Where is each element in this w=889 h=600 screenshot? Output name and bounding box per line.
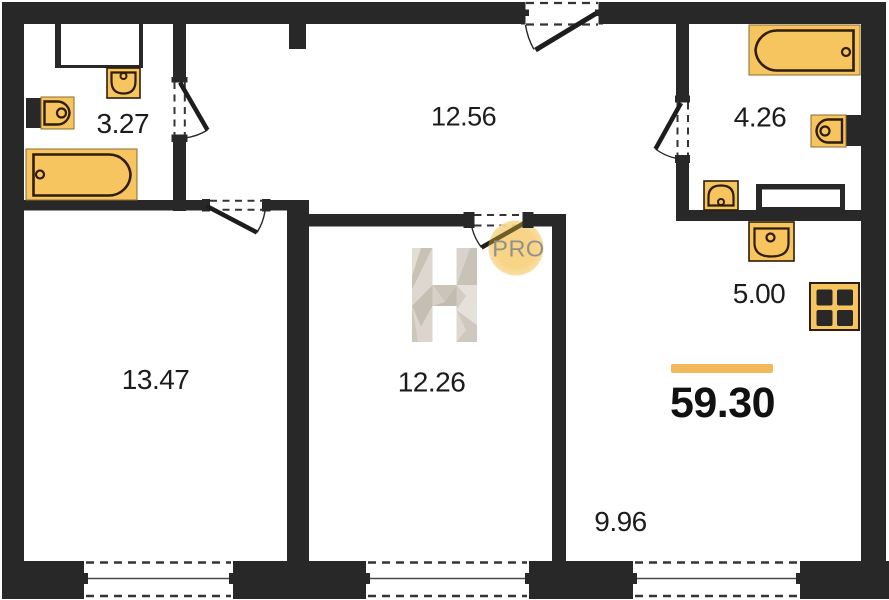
svg-text:13.47: 13.47 <box>122 364 190 395</box>
svg-text:12.56: 12.56 <box>431 102 496 132</box>
svg-text:3.27: 3.27 <box>97 108 150 139</box>
svg-text:5.00: 5.00 <box>733 278 786 309</box>
svg-text:4.26: 4.26 <box>734 102 787 133</box>
svg-text:PRO: PRO <box>492 236 544 262</box>
svg-text:9.96: 9.96 <box>594 506 647 537</box>
svg-text:12.26: 12.26 <box>398 367 466 398</box>
svg-text:59.30: 59.30 <box>670 379 775 427</box>
